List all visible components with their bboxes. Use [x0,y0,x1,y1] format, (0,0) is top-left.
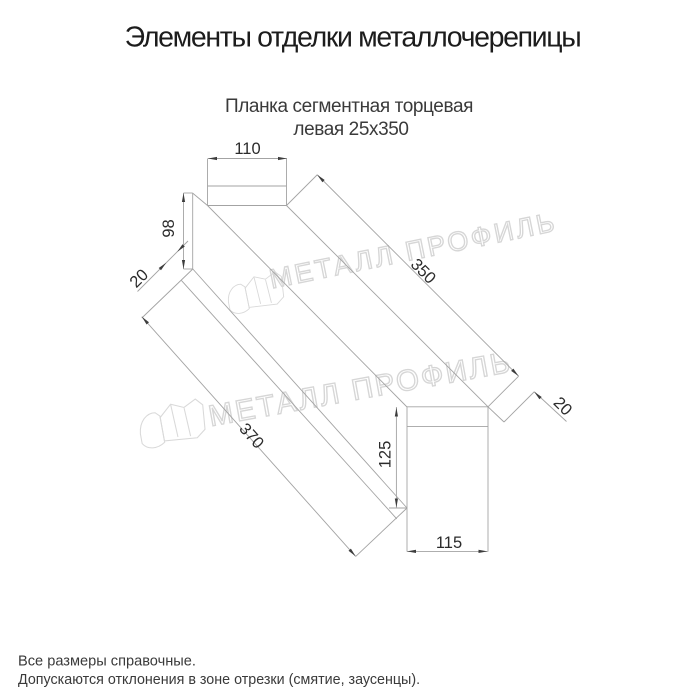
svg-text:20: 20 [550,394,576,420]
svg-text:Все размеры справочные.: Все размеры справочные. [18,654,196,670]
svg-text:115: 115 [436,534,462,552]
svg-text:Планка сегментная торцевая: Планка сегментная торцевая [225,96,473,117]
svg-text:125: 125 [377,441,395,469]
svg-text:20: 20 [126,266,152,292]
svg-text:110: 110 [234,140,260,158]
svg-text:левая 25х350: левая 25х350 [293,119,408,140]
svg-text:Элементы отделки металлочерепи: Элементы отделки металлочерепицы [125,22,581,54]
svg-text:МЕТАЛЛ ПРОФИЛЬ: МЕТАЛЛ ПРОФИЛЬ [267,207,560,295]
svg-text:Допускаются отклонения в зоне: Допускаются отклонения в зоне отрезки (с… [18,672,420,688]
svg-text:98: 98 [160,219,178,237]
